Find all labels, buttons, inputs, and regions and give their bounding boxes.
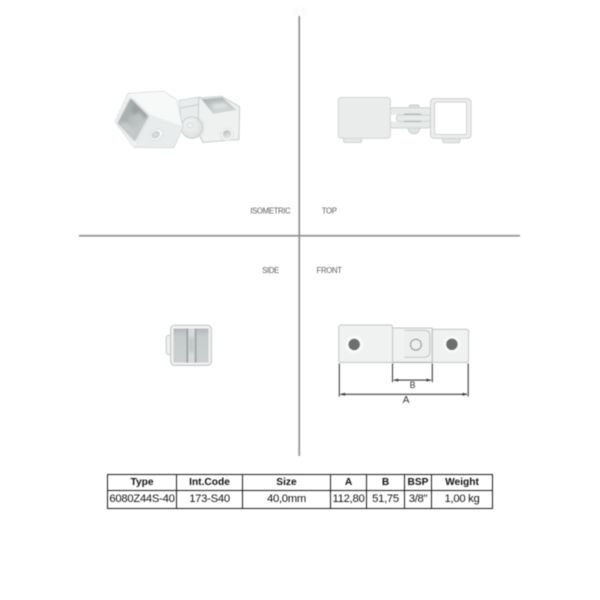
svg-text:SIDE: SIDE: [262, 266, 279, 275]
svg-text:TOP: TOP: [322, 206, 337, 215]
svg-text:FRONT: FRONT: [317, 266, 343, 275]
svg-text:ISOMETRIC: ISOMETRIC: [250, 206, 291, 215]
svg-text:A: A: [403, 395, 410, 406]
svg-text:B: B: [410, 380, 416, 390]
